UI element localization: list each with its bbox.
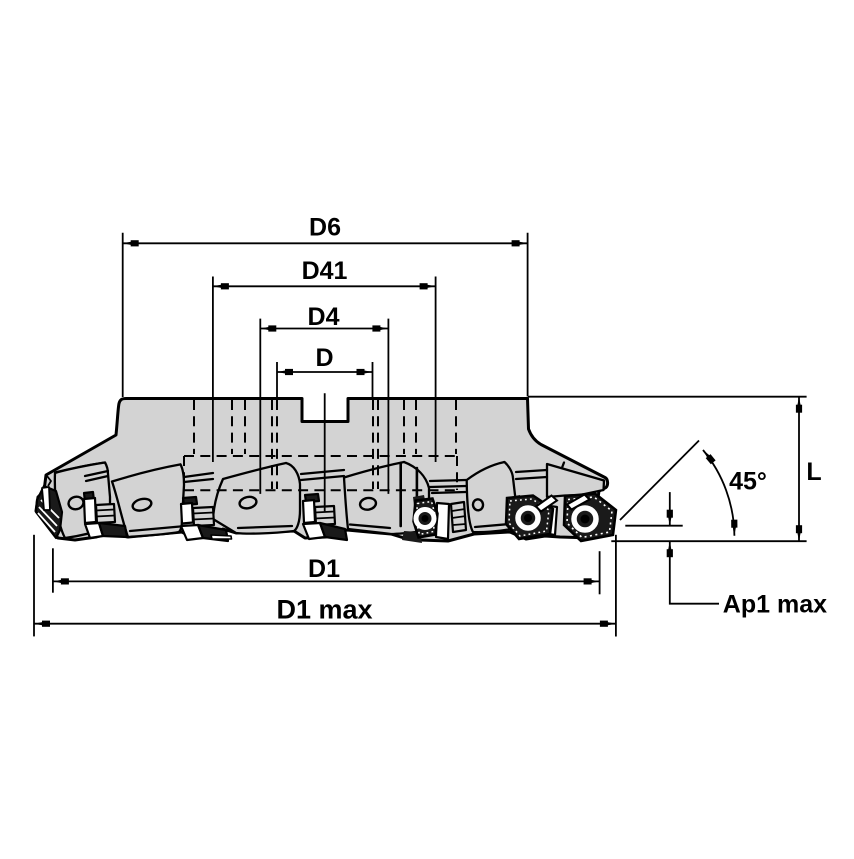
svg-text:D: D — [315, 344, 333, 372]
svg-text:Ap1 max: Ap1 max — [723, 591, 827, 619]
svg-text:D6: D6 — [309, 214, 341, 242]
svg-text:D41: D41 — [302, 257, 348, 285]
svg-text:L: L — [806, 458, 821, 486]
svg-text:D1 max: D1 max — [276, 595, 372, 625]
svg-text:D4: D4 — [308, 303, 340, 331]
svg-text:45°: 45° — [729, 468, 767, 496]
svg-text:D1: D1 — [308, 555, 340, 583]
